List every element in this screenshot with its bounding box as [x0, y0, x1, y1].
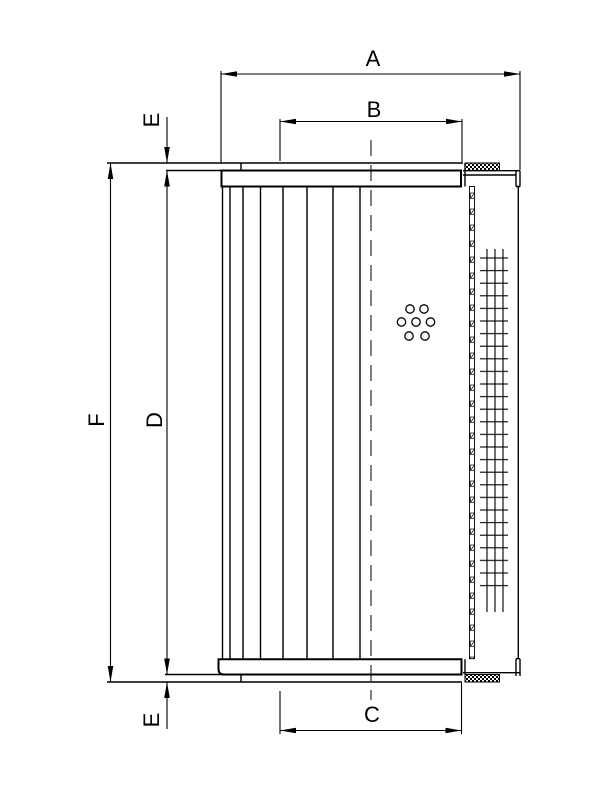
inner-tube-hatch-strip [470, 187, 475, 659]
dim-label-e-top: E [139, 113, 164, 128]
bottom-end-cap [219, 659, 462, 674]
wire-mesh-rows [480, 256, 508, 596]
dimension-e-top: E [139, 113, 170, 163]
arrowhead-top [164, 171, 170, 187]
arrowhead-down [164, 147, 170, 163]
arrowhead-bottom [164, 659, 170, 675]
drawing-page: A B C F D E E [0, 0, 612, 792]
top-end-plate [107, 163, 463, 171]
bottom-end-plate [107, 675, 462, 683]
bypass-holes [397, 305, 434, 340]
dimension-f: F [84, 163, 113, 682]
dim-label-b: B [367, 97, 382, 122]
dimension-d: D [142, 171, 170, 675]
bypass-hole [405, 332, 413, 340]
arrowhead-bottom [108, 666, 114, 682]
filter-element-view [107, 140, 520, 700]
top-seal-band [465, 163, 500, 171]
dim-label-c: C [364, 702, 380, 727]
arrowhead-right [504, 71, 520, 77]
arrowhead-right [446, 728, 462, 734]
dim-label-d: D [142, 412, 167, 428]
arrowhead-up [164, 682, 170, 698]
bypass-hole [397, 318, 405, 326]
arrowhead-top [108, 163, 114, 179]
bypass-hole [421, 332, 429, 340]
bypass-hole [406, 305, 414, 313]
dimension-e-bottom: E [139, 682, 170, 729]
arrowhead-right [446, 119, 462, 125]
bottom-seal-band [465, 675, 500, 683]
bypass-hole [420, 305, 428, 313]
bypass-hole [426, 318, 434, 326]
pleated-media [223, 187, 361, 660]
top-end-cap [222, 171, 462, 187]
bypass-hole [412, 318, 420, 326]
technical-drawing: A B C F D E E [0, 0, 612, 792]
dim-label-f: F [84, 413, 109, 426]
dim-label-a: A [366, 46, 381, 71]
arrowhead-left [280, 728, 296, 734]
dim-label-e-bottom: E [139, 713, 164, 728]
arrowhead-left [221, 71, 237, 77]
arrowhead-left [280, 119, 296, 125]
